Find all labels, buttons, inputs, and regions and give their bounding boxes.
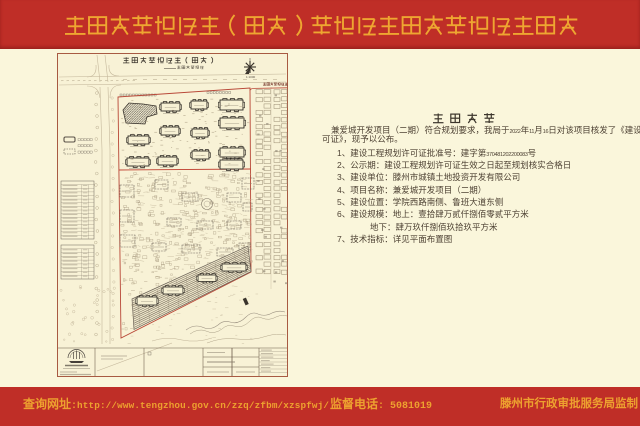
svg-text:1:1000: 1:1000 xyxy=(246,75,256,79)
